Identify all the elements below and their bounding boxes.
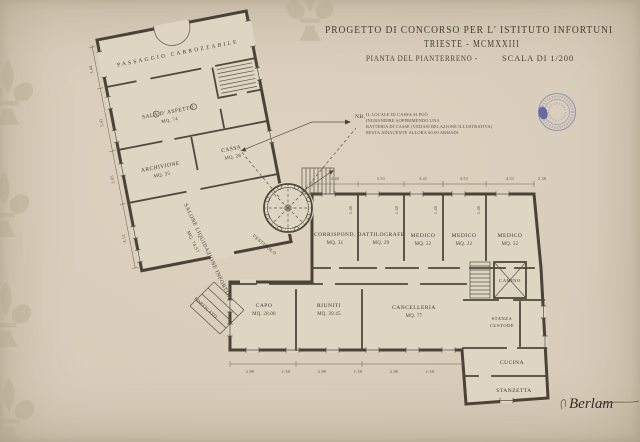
window (326, 347, 339, 352)
room-label-riuniti: RIUNITI (317, 303, 341, 309)
title-block: PROGETTO DI CONCORSO PER L' ISTITUTO INF… (325, 25, 613, 63)
room-label-dattilografe: DATTILOGRAFE (357, 232, 404, 238)
title-line-2: TRIESTE - MCMXXIII (424, 39, 520, 50)
dim-top-0: 3.40 (331, 176, 340, 181)
dim-top-4: 4.51 (506, 176, 514, 181)
room-label-stanza-custode-2: CUSTODE (490, 323, 515, 328)
dim-window-3: 1.40 (476, 205, 481, 214)
main-stair-treads (303, 168, 331, 194)
note-line-3: BATTERIA DI CASSE (VEDASI RELAZIONE ILLU… (366, 124, 493, 129)
dim-chain-top (312, 181, 534, 187)
room-label-stanza-custode-1: STANZA (492, 316, 513, 321)
window (406, 347, 419, 352)
label-porticato-group: PORTICATO (193, 296, 218, 320)
window (496, 191, 509, 196)
window (452, 191, 465, 196)
window (246, 347, 259, 352)
dim-top-1: 3.51 (377, 176, 385, 181)
window (410, 191, 423, 196)
room-label-corrispond: CORRISPOND. (314, 232, 356, 238)
dim-bottom-0: 2.80 (246, 369, 255, 374)
room-label-camino: CAMINO (499, 278, 521, 283)
note-line-2: INGRANDIRE SOPPRIMENDO UNA (366, 118, 440, 123)
dim-bottom-2: 2.80 (318, 369, 327, 374)
title-scale: SCALA DI 1/200 (502, 54, 574, 63)
room-area-cancelleria: MQ. 77 (406, 314, 423, 319)
room-label-stanzetta: STANZETTA (496, 388, 531, 394)
dim-left-3: 4.12 (121, 234, 128, 243)
room-area-corrispond: MQ. 31 (327, 241, 344, 246)
window (366, 347, 379, 352)
fleur-watermark-icon (0, 377, 34, 442)
dim-window-1: 1.40 (394, 205, 399, 214)
left-wing: PASSAGGIO CARROZZABILE SALA D' ASPETTO M… (83, 8, 304, 323)
dim-top-3: 4.51 (460, 176, 468, 181)
room-label-porticato: PORTICATO (193, 296, 218, 320)
title-line-3a: PIANTA DEL PIANTERRENO - (366, 54, 478, 63)
title-line-1: PROGETTO DI CONCORSO PER L' ISTITUTO INF… (325, 25, 613, 36)
window (442, 347, 455, 352)
room-area-capo: MQ. 28.00 (252, 312, 276, 317)
room-area-medico-1: MQ. 22 (415, 242, 432, 247)
dim-window-0: 1.40 (348, 205, 353, 214)
note-label: NB. (355, 114, 366, 120)
room-label-medico-3: MEDICO (498, 233, 523, 239)
drawing-sheet: PASSAGGIO CARROZZABILE SALA D' ASPETTO M… (0, 0, 640, 442)
dim-bottom-5: 1.50 (426, 369, 435, 374)
stamp-center-marks (549, 104, 566, 121)
dim-top-2: 3.41 (419, 176, 427, 181)
window (541, 306, 546, 318)
dim-bottom-4: 2.80 (390, 369, 399, 374)
note-line-1: IL LOCALE DI CASSA SI PUÒ (366, 112, 428, 117)
dim-window-2: 1.40 (433, 205, 438, 214)
floor-plan-svg: PASSAGGIO CARROZZABILE SALA D' ASPETTO M… (0, 0, 640, 442)
fleur-watermark-icon (0, 59, 33, 125)
fleur-watermark-icon (0, 171, 29, 237)
window (286, 347, 299, 352)
dim-chain-bottom (230, 361, 462, 367)
room-label-cancelleria: CANCELLERIA (392, 305, 436, 311)
nb-note: NB. IL LOCALE DI CASSA SI PUÒ INGRANDIRE… (241, 112, 493, 151)
dim-bottom-3: 1.50 (354, 369, 363, 374)
signature-text: Berlam (569, 396, 613, 412)
leader-arrow-icon (345, 120, 351, 125)
dim-left-1: 5.41 (98, 118, 105, 127)
fleur-watermark-icon (0, 281, 31, 347)
room-label-cucina: CUCINA (500, 360, 524, 366)
room-area-medico-2: MQ. 22 (456, 242, 473, 247)
ink-stamp (537, 94, 575, 131)
dim-left-2: 3.05 (109, 174, 116, 184)
room-area-dattilografe: MQ. 29 (373, 241, 390, 246)
window (366, 191, 379, 196)
room-label-medico-1: MEDICO (411, 233, 436, 239)
window (500, 398, 513, 403)
room-area-medico-3: MQ. 22 (502, 242, 519, 247)
window (542, 336, 547, 348)
note-line-4: RESTA ADIACENTE ALLORA 60.00 ARMADI (366, 130, 459, 135)
dim-top-5: 2.38 (538, 176, 547, 181)
room-label-capo: CAPO (256, 303, 273, 309)
stair-arrow-icon (329, 170, 334, 175)
dim-bottom-1: 1.50 (282, 369, 291, 374)
signature-flourish (561, 400, 566, 409)
dim-left-0: 3.44 (88, 64, 95, 74)
room-area-riuniti: MQ. 39.45 (317, 312, 341, 317)
room-label-medico-2: MEDICO (452, 233, 477, 239)
architect-signature: Berlam (561, 396, 639, 412)
